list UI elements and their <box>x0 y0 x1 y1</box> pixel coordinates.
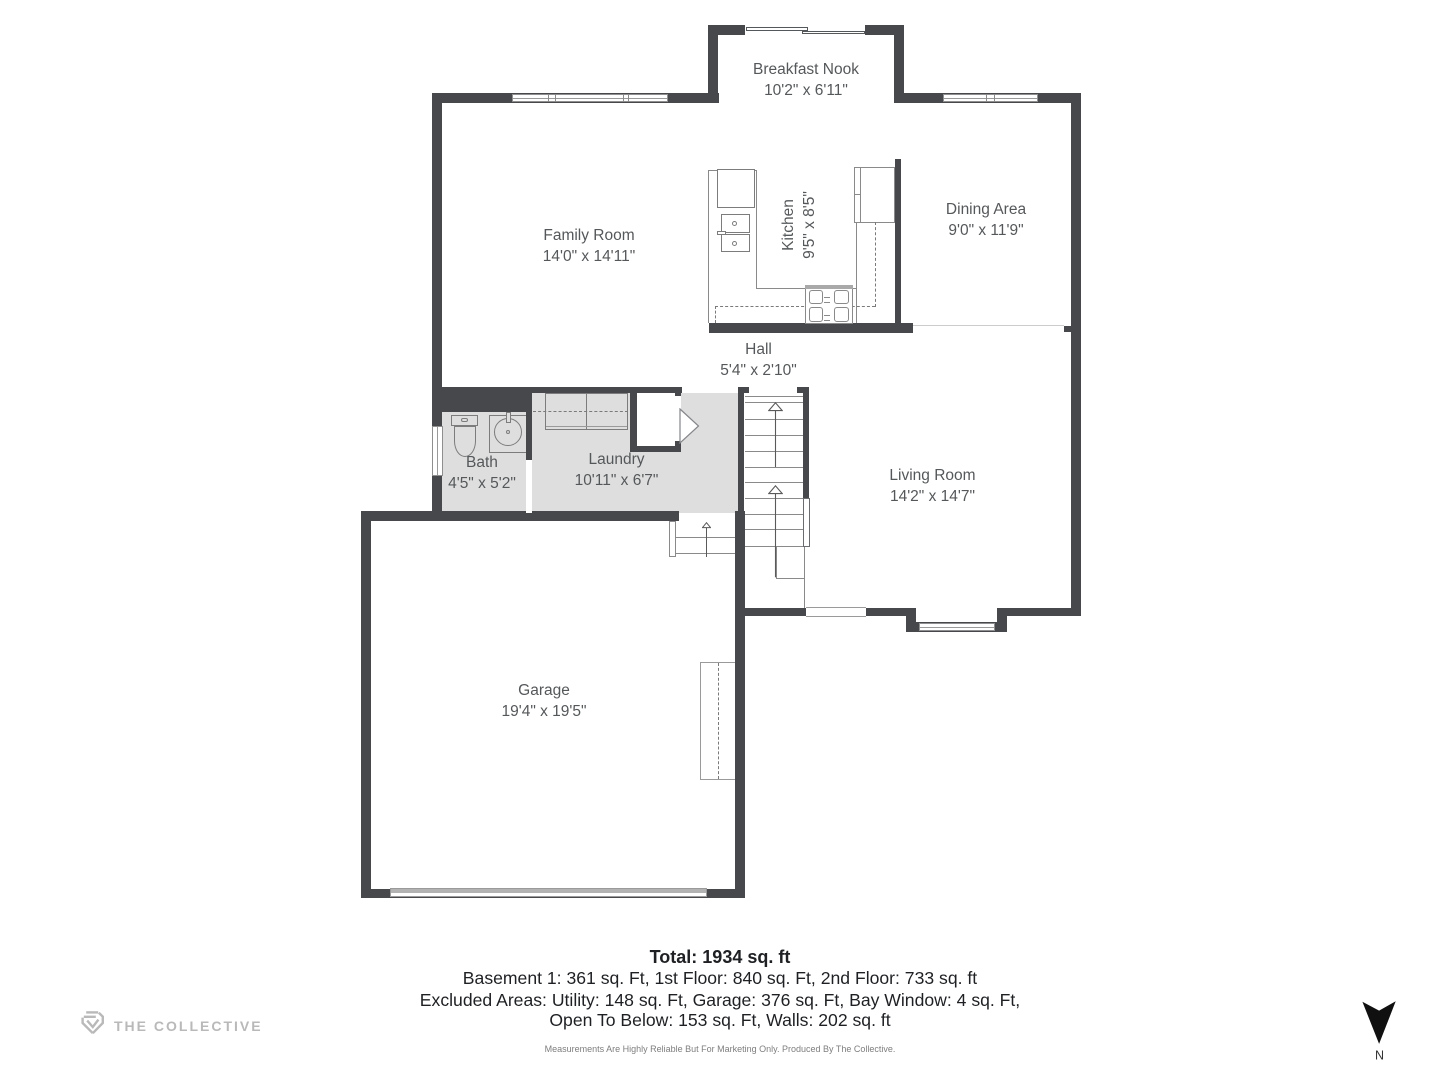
svg-text:N: N <box>1375 1049 1384 1063</box>
